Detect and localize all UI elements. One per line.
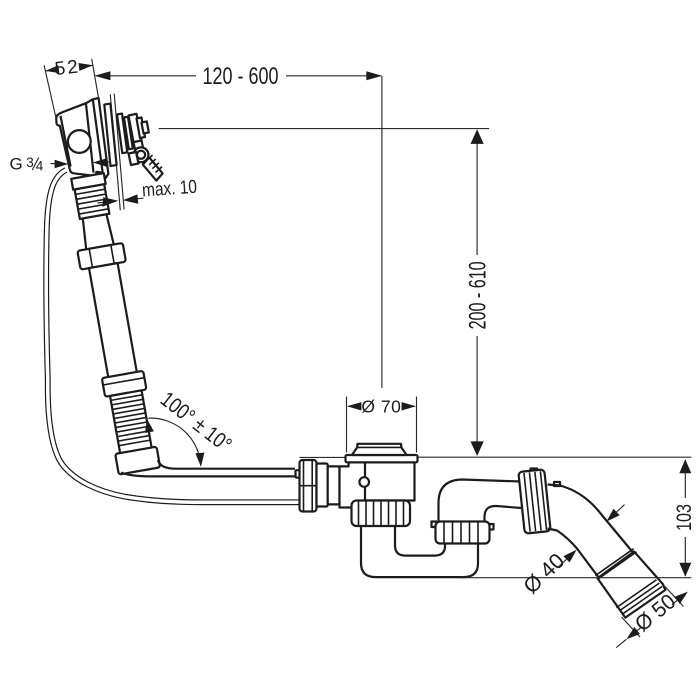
svg-text:200 - 610: 200 - 610	[465, 261, 492, 329]
svg-text:120 - 600: 120 - 600	[203, 63, 279, 90]
svg-text:4: 4	[36, 159, 44, 174]
svg-text:3: 3	[26, 155, 34, 170]
svg-text:max. 10: max. 10	[141, 177, 197, 202]
svg-text:Ø 70: Ø 70	[361, 397, 401, 417]
svg-text:103: 103	[673, 504, 696, 531]
svg-text:52: 52	[54, 56, 81, 80]
svg-text:G: G	[10, 155, 23, 174]
